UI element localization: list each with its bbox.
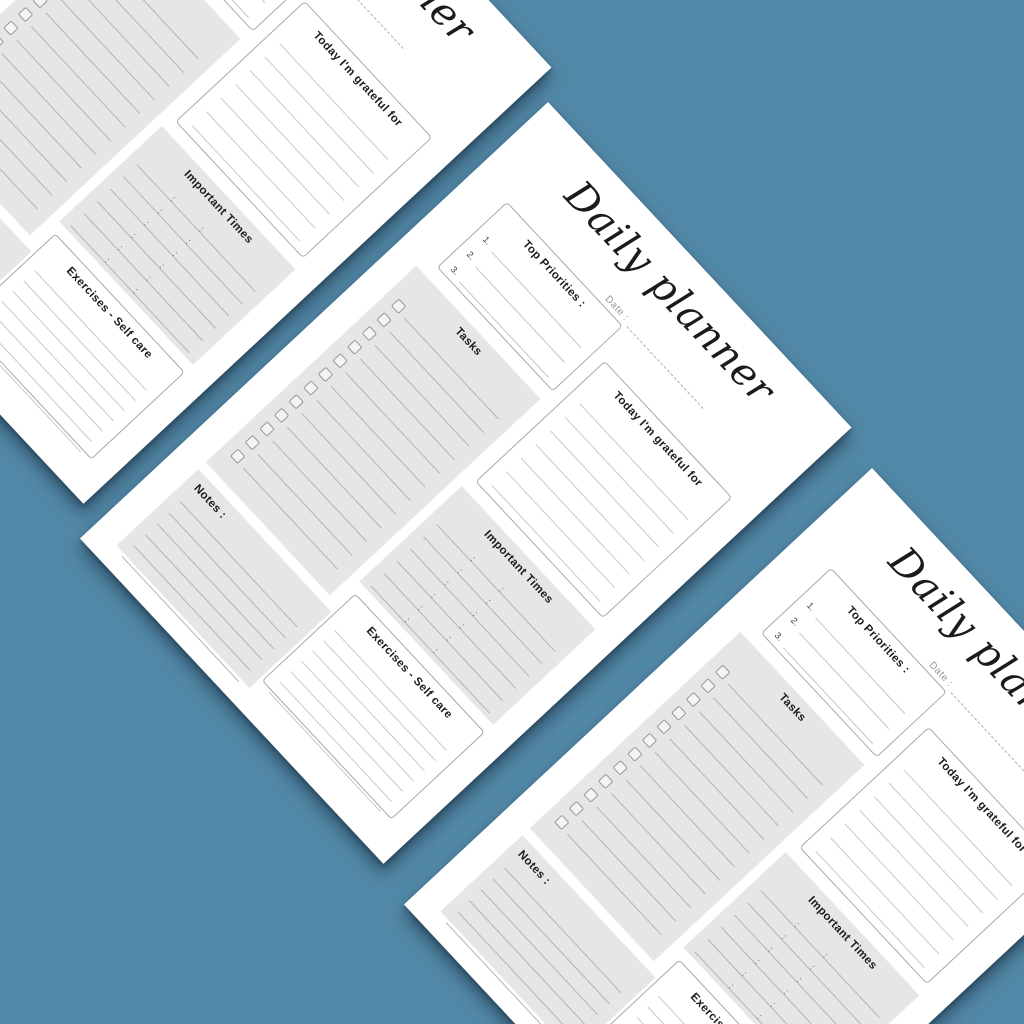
time-colon: :: [403, 616, 412, 625]
backdrop: Daily planner Date : Top Priorities : 1.…: [0, 0, 1024, 1024]
time-colon: :: [103, 256, 112, 265]
priority-number: 3.: [773, 630, 791, 648]
task-checkbox: [230, 448, 246, 464]
time-colon: :: [131, 286, 140, 295]
time-colon: :: [431, 646, 440, 655]
priority-number: 3.: [449, 264, 467, 282]
time-colon: :: [755, 1012, 764, 1021]
time-colon: :: [727, 982, 736, 991]
task-checkbox: [0, 34, 4, 50]
task-checkbox: [554, 814, 570, 830]
